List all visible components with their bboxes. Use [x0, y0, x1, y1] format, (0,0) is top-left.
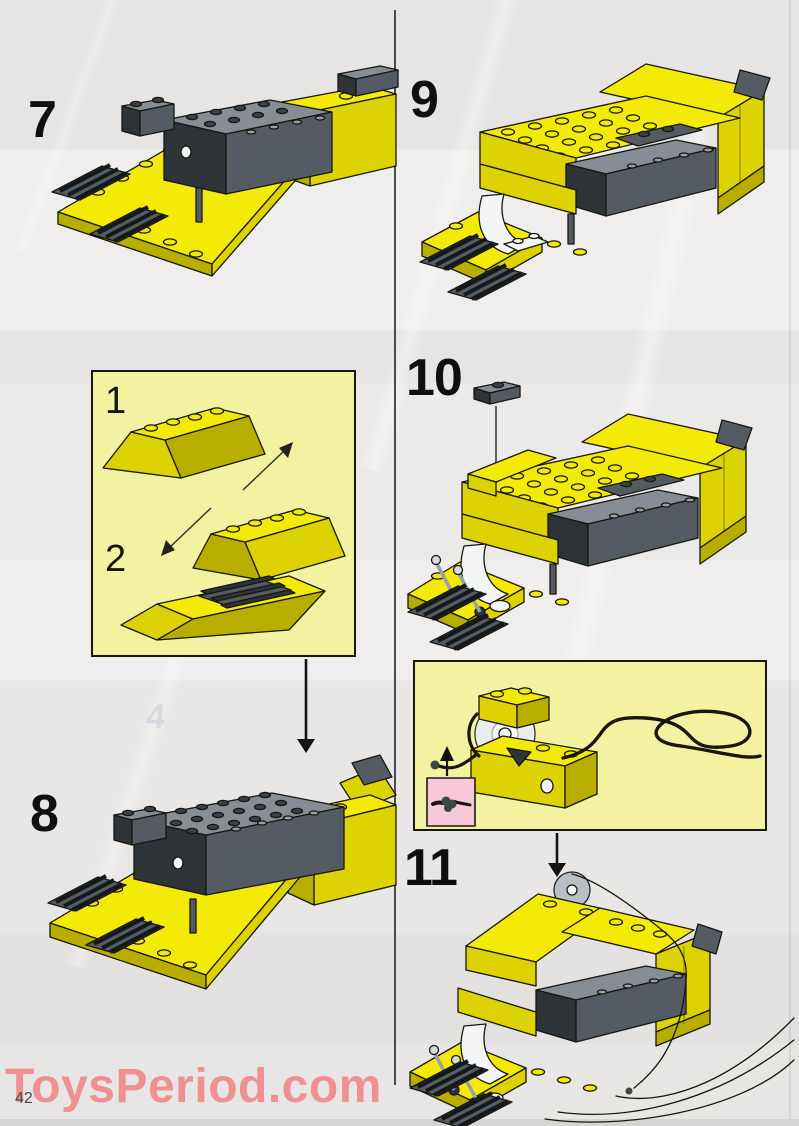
slope-brick-upper	[103, 408, 265, 478]
step9-model-illustration	[420, 50, 796, 302]
knot-pointer-arrow	[440, 746, 454, 776]
step10-model-illustration	[408, 374, 788, 642]
step9-number: 9	[410, 74, 438, 126]
string-box-illustration	[415, 662, 763, 827]
arrow-down-to-step11-icon	[546, 833, 568, 877]
step11-canopy	[466, 894, 608, 986]
step8-small-dark-brick	[114, 806, 166, 845]
string-knot	[431, 761, 440, 770]
page-number: 42	[15, 1090, 33, 1108]
parts-box-illustration	[93, 372, 352, 653]
ghost-bleedthrough-digit: 4	[144, 698, 167, 737]
step7-number: 7	[28, 94, 56, 146]
winch-upper-brick	[479, 688, 549, 728]
step8-model-illustration	[40, 755, 396, 1040]
slope-brick-lower	[193, 509, 345, 580]
step7-small-dark-brick	[122, 97, 174, 136]
step10-white-disc	[490, 601, 510, 612]
step7-model-illustration	[46, 60, 396, 276]
winch-assembly	[471, 688, 597, 808]
arrow-down-to-step8-icon	[295, 659, 317, 753]
instruction-page: 4 7	[0, 0, 799, 1126]
step10-number: 10	[406, 352, 462, 404]
step8-number: 8	[30, 788, 58, 840]
ramp-with-grille-plate	[121, 576, 325, 640]
step11-model-illustration	[410, 860, 795, 1122]
step11-number: 11	[404, 842, 457, 894]
step10-floating-plate	[474, 382, 520, 466]
toysperiod-watermark: ToysPeriod.com	[5, 1059, 382, 1114]
winch-lower-brick	[471, 736, 597, 808]
knot-inset	[427, 778, 475, 826]
